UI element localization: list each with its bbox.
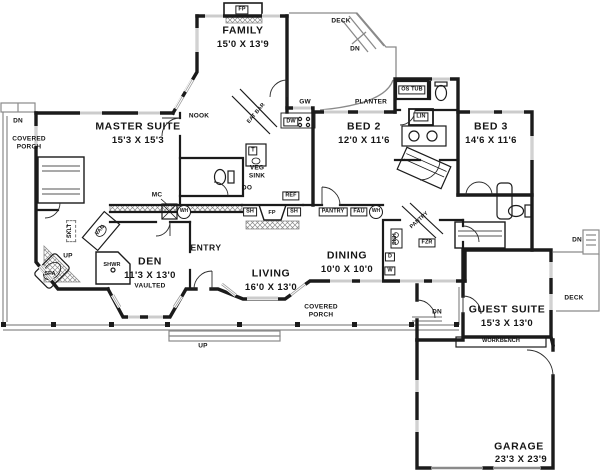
deck-top-outline: [289, 13, 396, 78]
hatched-areas: [44, 16, 299, 282]
floor-plan-drawing: [0, 0, 600, 472]
deck-right-outline: [553, 230, 599, 311]
exterior-walls: [36, 16, 553, 468]
floor-plan: FAMILY 15'0 X 13'9 MASTER SUITE 15'3 X 1…: [0, 0, 600, 472]
porch-left-outline: [1, 103, 35, 326]
planter-outline: [320, 80, 393, 110]
